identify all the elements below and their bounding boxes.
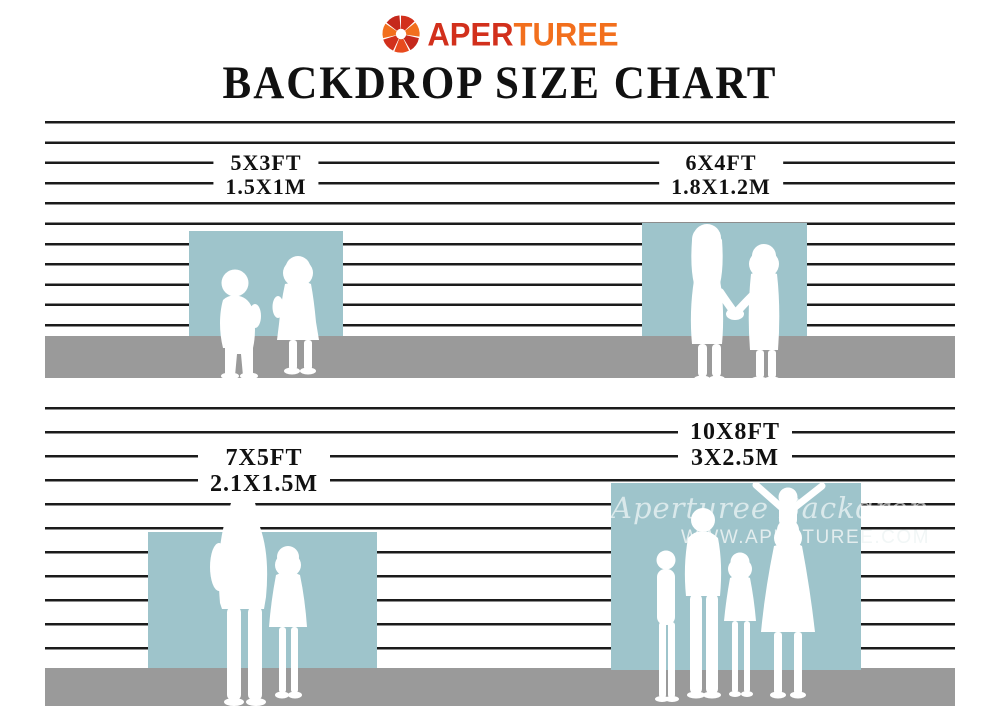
floor-strip-top xyxy=(45,336,955,378)
header: APERTUREE BACKDROP SIZE CHART xyxy=(0,0,1000,108)
size-label-5x3ft: 5X3FT 1.5X1M xyxy=(213,150,318,200)
silhouette-father-daughter xyxy=(198,495,323,708)
brand-name-part1: APER xyxy=(427,16,513,53)
size-m: 2.1X1.5M xyxy=(210,471,318,497)
size-m: 1.5X1M xyxy=(225,175,306,199)
size-label-10x8ft: 10X8FT 3X2.5M xyxy=(678,418,792,473)
silhouette-family-group xyxy=(648,480,858,708)
size-m: 1.8X1.2M xyxy=(671,175,771,199)
silhouette-two-toddlers xyxy=(205,252,330,380)
silhouette-two-girls xyxy=(672,222,797,384)
brand-name-part2: TUREE xyxy=(514,16,619,53)
size-ft: 5X3FT xyxy=(225,151,306,175)
aperture-icon xyxy=(381,14,421,54)
brand-name: APERTUREE xyxy=(427,18,618,51)
page-title: BACKDROP SIZE CHART xyxy=(0,57,1000,110)
brand-logo: APERTUREE xyxy=(0,0,1000,55)
wall-siding-lines-top xyxy=(45,121,955,327)
size-ft: 6X4FT xyxy=(671,151,771,175)
backdrop-size-chart: APERTUREE BACKDROP SIZE CHART xyxy=(0,0,1000,714)
size-m: 3X2.5M xyxy=(690,445,780,471)
size-ft: 7X5FT xyxy=(210,445,318,471)
size-label-7x5ft: 7X5FT 2.1X1.5M xyxy=(198,444,330,499)
size-label-6x4ft: 6X4FT 1.8X1.2M xyxy=(659,150,783,200)
size-ft: 10X8FT xyxy=(690,419,780,445)
